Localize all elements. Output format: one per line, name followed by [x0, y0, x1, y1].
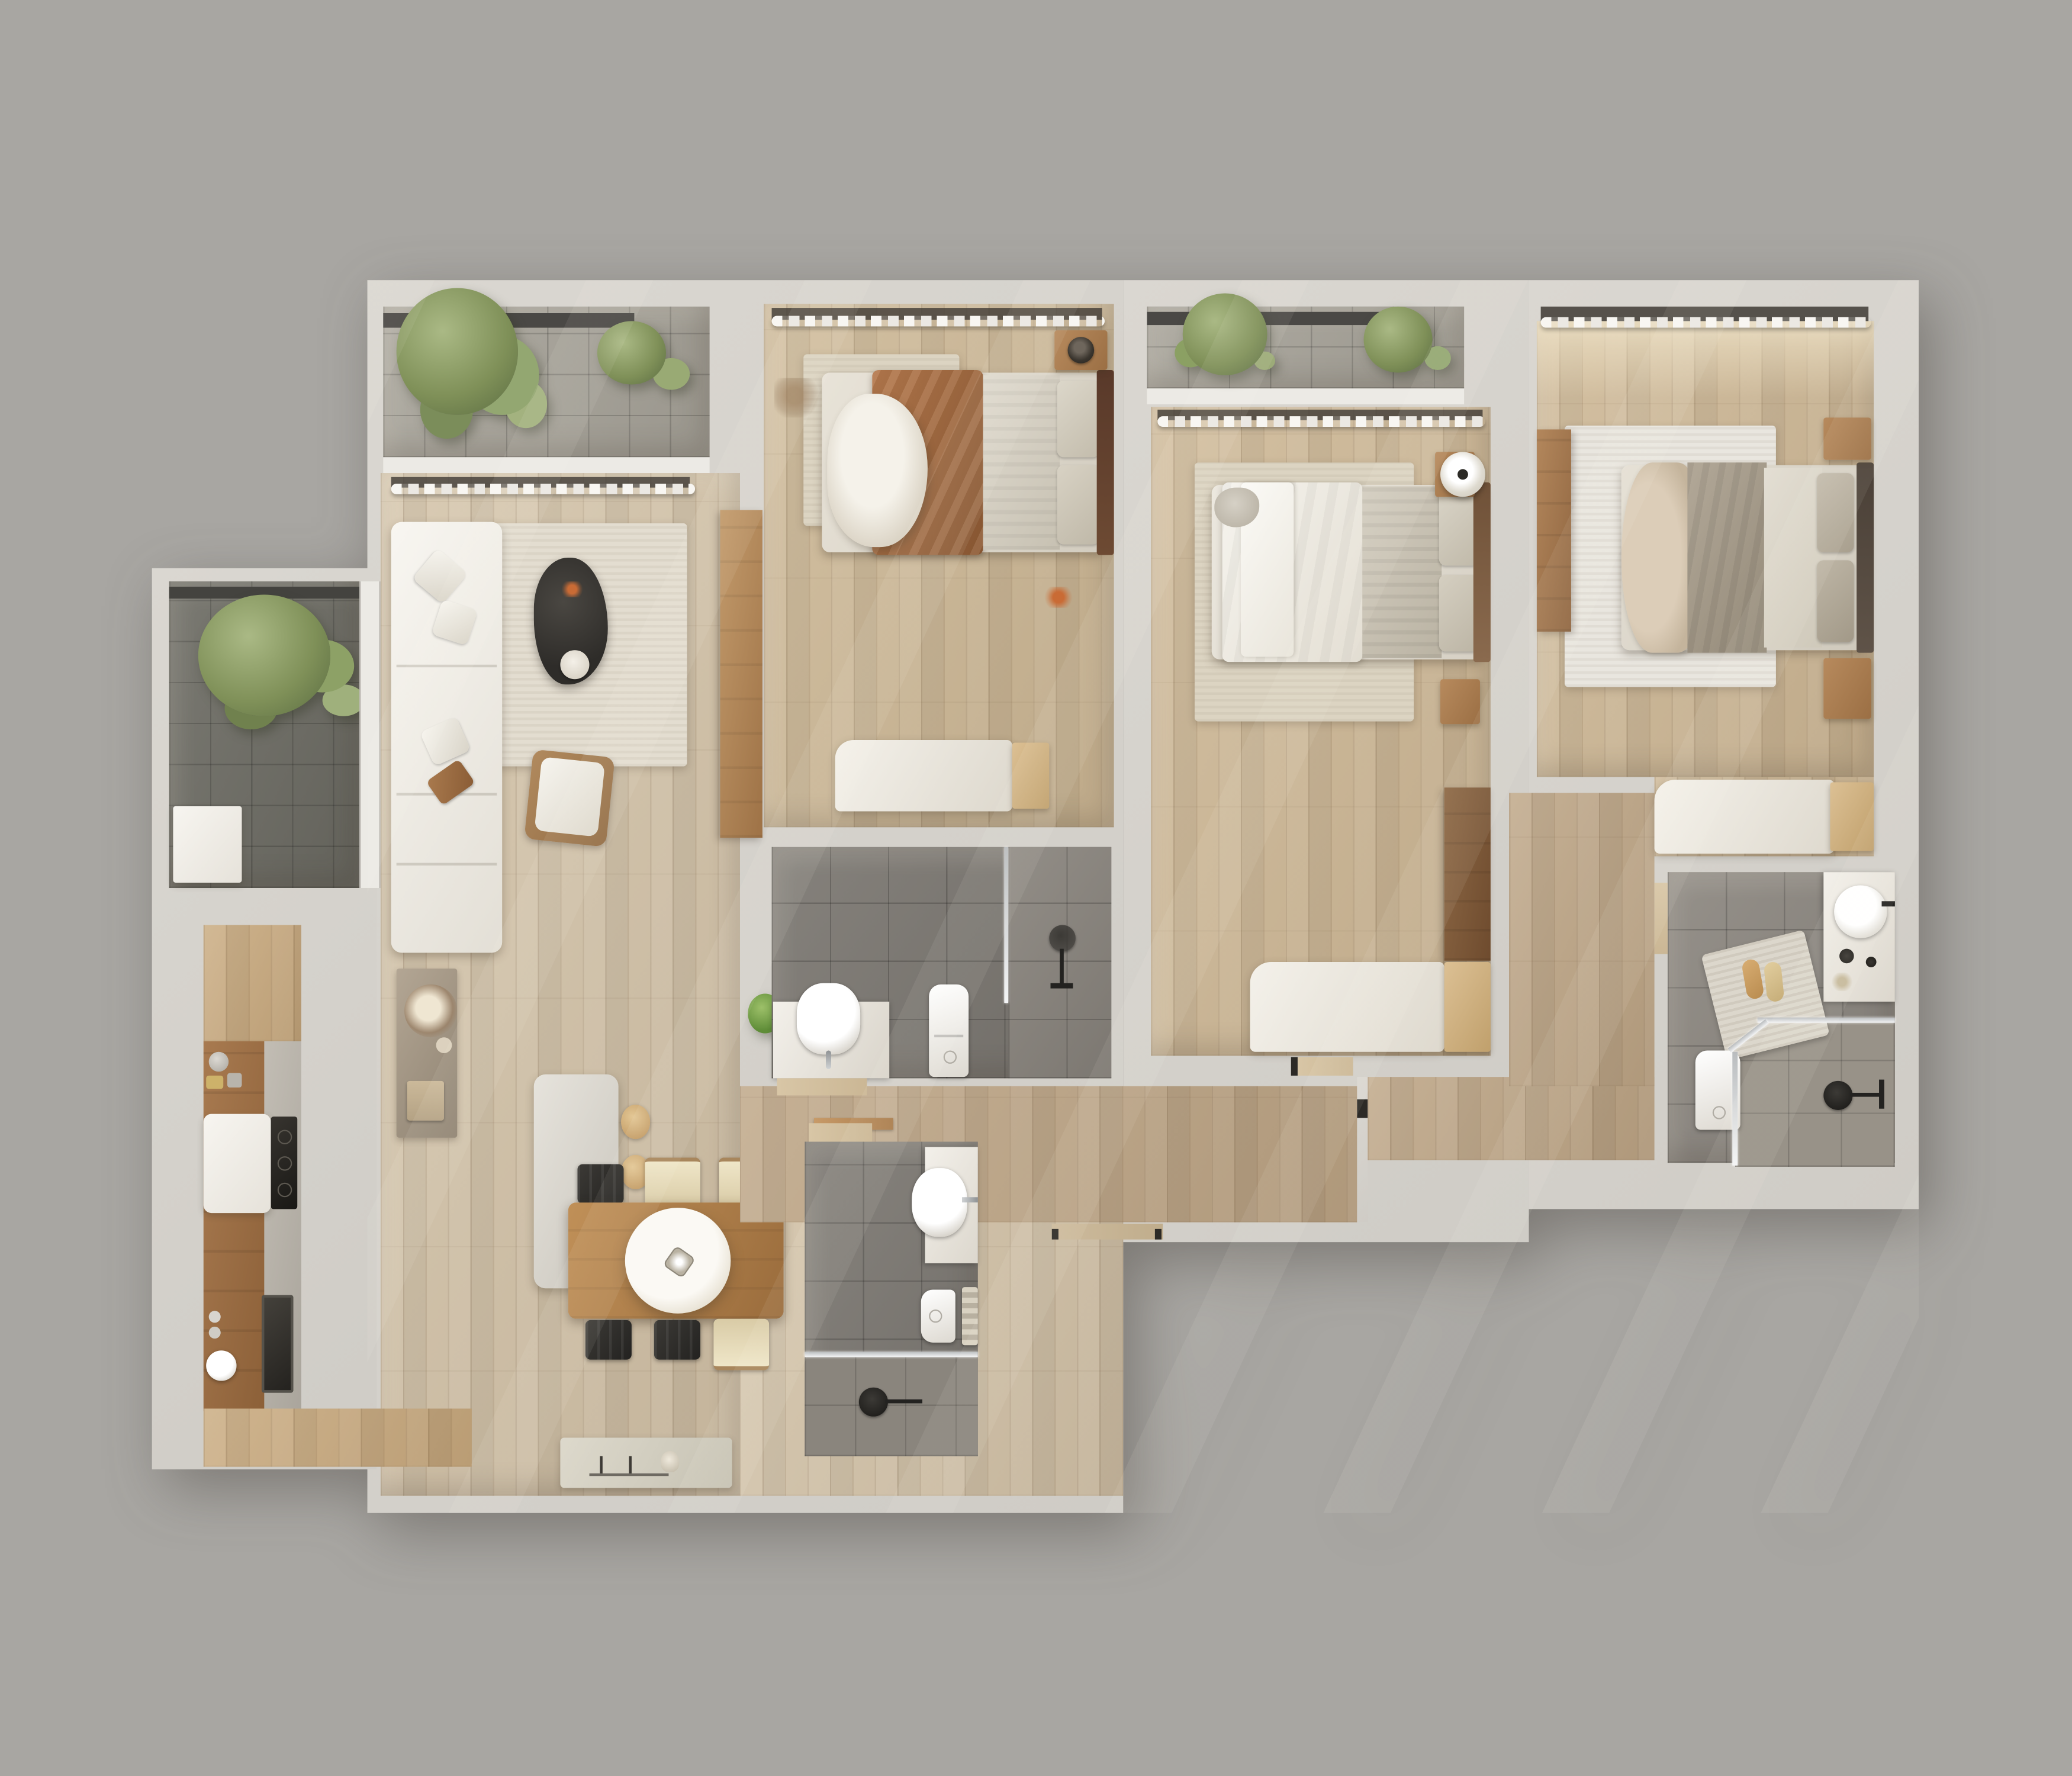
sofa [391, 522, 502, 953]
living-wardrobe [720, 510, 762, 838]
disc-lamp-icon [1440, 452, 1485, 497]
bedroom-3-wardrobe [1537, 429, 1571, 632]
disc-lamp-center [1458, 469, 1468, 480]
balcony-plant-icon [597, 321, 666, 384]
dish-icon [206, 1076, 223, 1089]
bedroom-2-curtain [1157, 416, 1485, 427]
island-stool [621, 1105, 650, 1139]
bed-1-pillow [1057, 381, 1099, 457]
faucet-icon [826, 1051, 831, 1069]
bed-2-pillow [1439, 575, 1479, 651]
shower-head-icon [1049, 925, 1076, 951]
dining-chair [713, 1319, 769, 1370]
dining-chair-dark [654, 1320, 700, 1360]
soap-icon [1839, 949, 1854, 964]
balcony-table [173, 806, 242, 883]
cooktop [271, 1117, 298, 1209]
burner-icon [278, 1183, 292, 1198]
door-frame-icon [1291, 1057, 1298, 1076]
bathroom-lower-glass [805, 1352, 977, 1357]
floor-plan-stage [0, 0, 2072, 1776]
bathroom-lower-sink [912, 1168, 967, 1237]
hallway-vertical [1509, 793, 1655, 1086]
oven [262, 1295, 294, 1392]
ensuite-basin [1834, 886, 1887, 938]
bathroom-lower-threshold [809, 1123, 872, 1141]
decor-arrow-icon [600, 1456, 602, 1475]
hallway-door-stub [1357, 1077, 1368, 1222]
bedroom-1-desk [835, 740, 1012, 812]
bed-2-pillow [1439, 491, 1479, 565]
faucet-icon [962, 1197, 978, 1202]
decor-orange-sprig-icon [560, 581, 584, 597]
burner-icon [278, 1156, 292, 1171]
canister-icon [227, 1073, 242, 1088]
bed-3-headboard [1857, 462, 1874, 652]
bathroom-1-threshold [777, 1078, 867, 1095]
door-hinge-icon [1155, 1229, 1162, 1240]
sideboard [560, 1438, 732, 1488]
kitchen [169, 925, 377, 1469]
orange-plant-icon [1044, 587, 1073, 608]
bedroom-3-desk-wood-end [1830, 782, 1874, 851]
balcony-top-left-sill [383, 457, 709, 473]
bedroom-2-nightstand-bottom [1440, 679, 1480, 724]
balcony-2-sill [1147, 388, 1464, 404]
ensuite-glass-horizontal [1758, 1018, 1895, 1023]
toilet-lid-line [934, 1035, 963, 1037]
bedroom-3-nightstand-bottom [1823, 658, 1871, 719]
decor-arrow-icon [629, 1456, 631, 1475]
bedroom-1-curtain [772, 316, 1105, 326]
decor-tray-line [590, 1473, 669, 1476]
olive-tree-icon [397, 288, 518, 415]
balcony-2-plant-icon [1183, 294, 1267, 375]
cup-icon [209, 1327, 221, 1339]
bed-2-headboard [1473, 482, 1491, 662]
kitchen-prep-counter [204, 1114, 271, 1213]
hallway-east [1368, 1077, 1654, 1160]
bed-3-pillow [1817, 473, 1854, 552]
books-stack [407, 1081, 443, 1121]
bedroom-2-desk [1250, 962, 1444, 1052]
ensuite-shower-head-icon [1823, 1081, 1852, 1110]
dining-chair [645, 1157, 700, 1206]
decor-vase-icon [661, 1451, 679, 1472]
bedroom-3-curtain [1541, 317, 1871, 328]
dry-branch-icon [774, 378, 819, 417]
bed-1-sheet-crumpled [827, 394, 928, 547]
ensuite-glass-vertical [1732, 1052, 1738, 1166]
dining-chair-dark [577, 1164, 623, 1204]
bed-1 [822, 370, 1114, 555]
sofa-seam [397, 863, 497, 866]
door-hinge-icon [1052, 1229, 1058, 1240]
shower-glass-1 [1004, 847, 1008, 1003]
bed-1-blanket [983, 375, 1060, 550]
bathroom-lower-shower-floor [805, 1356, 977, 1456]
balcony-2-plant-icon [1364, 307, 1433, 373]
bedroom-3-nightstand-top [1823, 417, 1871, 459]
bed-1-headboard [1097, 370, 1114, 555]
burner-icon [278, 1130, 292, 1144]
balcony-left-plant-icon [198, 594, 330, 716]
bed-2-blanket [1362, 486, 1442, 658]
nightstand-lamp-icon [1068, 337, 1095, 363]
shower-arm-icon [1060, 949, 1064, 986]
bed-3-sheet-beige [1621, 462, 1690, 652]
bathroom-1-sink [797, 983, 860, 1055]
bedroom-1-desk-wood-end [1012, 742, 1049, 809]
bed-1-pillow [1057, 465, 1099, 545]
armchair [524, 749, 614, 847]
bedroom-3-sun-band [1537, 321, 1874, 397]
door-frame-icon [1357, 1099, 1368, 1118]
cup-icon [209, 1311, 221, 1323]
kitchen-upper-cabinet [204, 925, 301, 1041]
bathroom-lower-toilet [921, 1290, 955, 1343]
toilet-button-icon [1713, 1106, 1726, 1119]
toilet-button-icon [929, 1310, 942, 1323]
apartment-floor-plan [0, 0, 2072, 1776]
bathroom-lower-shower-head-icon [859, 1388, 888, 1417]
bathroom-1-toilet [929, 984, 969, 1077]
toilet-button-icon [944, 1051, 957, 1064]
bed-3 [1621, 462, 1874, 652]
soap-icon [1866, 957, 1877, 967]
ensuite-valve-icon [1879, 1080, 1884, 1109]
bedroom-2-wardrobe [1444, 787, 1491, 960]
ensuite-door-threshold [1655, 883, 1668, 954]
entry-threshold [1052, 1224, 1163, 1240]
blossom-branches-icon [404, 984, 457, 1037]
kitchen-lower-cabinet-run [204, 1408, 472, 1466]
bed-3-pillow [1817, 560, 1854, 642]
kitchen-sink [206, 1350, 236, 1381]
pendant-center-icon [662, 1246, 696, 1279]
living-curtain [391, 484, 695, 494]
kettle-icon [209, 1052, 229, 1072]
bed-3-sheet-light [1764, 468, 1822, 648]
bathroom-lower-shower-arm-icon [886, 1399, 922, 1404]
ensuite-faucet-icon [1882, 901, 1895, 906]
towel-rail-icon [962, 1287, 978, 1345]
dining-chair-dark [585, 1320, 632, 1360]
bedroom-2-door-threshold [1298, 1057, 1353, 1076]
armchair-cushion [534, 757, 605, 837]
bedroom-3-desk [1655, 780, 1835, 854]
sofa-seam [397, 665, 497, 667]
bedroom-2-desk-wood-end [1444, 962, 1491, 1052]
bed-3-blanket-grey [1687, 462, 1767, 652]
bed-2 [1212, 482, 1491, 662]
pendant-lamp [625, 1208, 731, 1314]
ensuite-sprig-icon [1832, 973, 1853, 991]
tray-icon [560, 650, 589, 679]
living-window-west [359, 581, 381, 888]
shower-valve-icon [1051, 983, 1073, 989]
